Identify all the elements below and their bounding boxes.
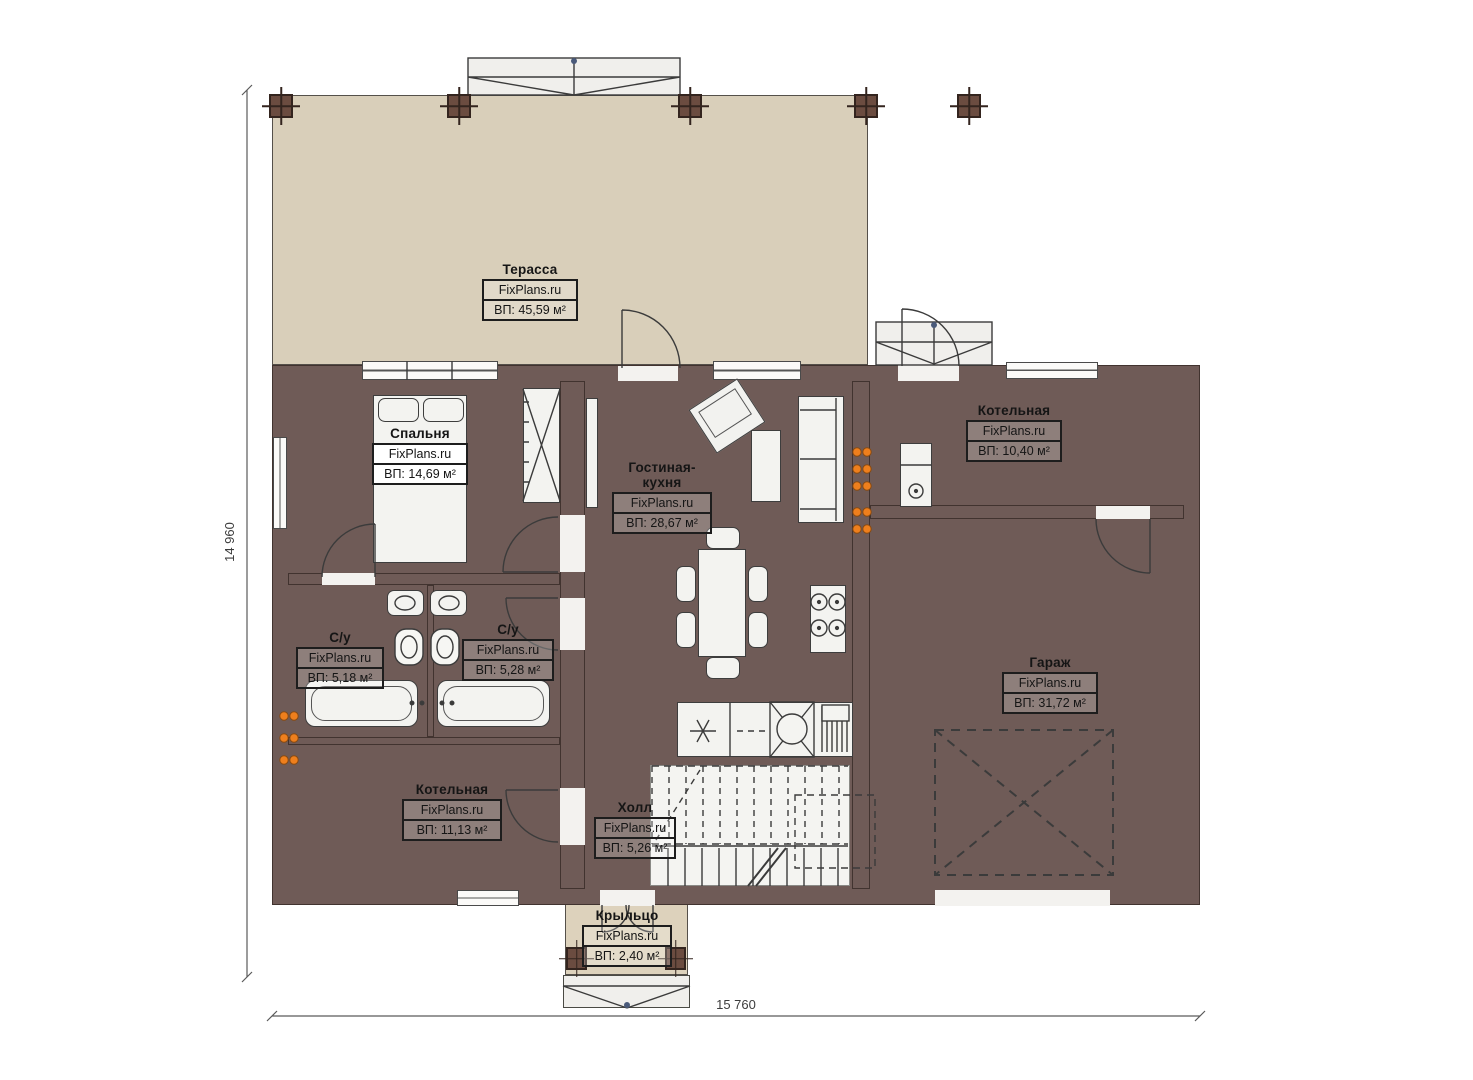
bathtub bbox=[437, 680, 550, 727]
boiler-bottom-door-opening bbox=[560, 788, 585, 845]
room-label-bedroom: Спальня FixPlans.ru ВП: 14,69 м² bbox=[372, 426, 468, 485]
pillow bbox=[378, 398, 419, 422]
brand-watermark: FixPlans.ru bbox=[596, 819, 674, 839]
brand-watermark: FixPlans.ru bbox=[584, 927, 670, 947]
boiler-top-window bbox=[1006, 362, 1098, 379]
room-area: ВП: 31,72 м² bbox=[1004, 694, 1096, 712]
room-name: С/у bbox=[296, 630, 384, 645]
wardrobe bbox=[523, 388, 560, 503]
terrace-post bbox=[269, 94, 293, 118]
room-label-porch: Крыльцо FixPlans.ru ВП: 2,40 м² bbox=[582, 908, 672, 967]
brand-watermark: FixPlans.ru bbox=[968, 422, 1060, 442]
kitchen-counter bbox=[677, 702, 853, 757]
room-label-living: Гостиная-кухня FixPlans.ru ВП: 28,67 м² bbox=[612, 460, 712, 534]
washbasin bbox=[430, 590, 467, 616]
room-label-garage: Гараж FixPlans.ru ВП: 31,72 м² bbox=[1002, 655, 1098, 714]
bath-left-door-opening bbox=[322, 573, 375, 585]
terrace-door-opening bbox=[618, 366, 678, 381]
dimension-width: 15 760 bbox=[676, 997, 796, 1012]
boiler-top-exit-opening bbox=[898, 364, 959, 381]
room-label-bath-right: С/у FixPlans.ru ВП: 5,28 м² bbox=[462, 622, 554, 681]
chair bbox=[676, 612, 696, 648]
room-area: ВП: 5,18 м² bbox=[298, 669, 382, 687]
wall-right-wing bbox=[852, 381, 870, 889]
porch-steps bbox=[563, 975, 690, 1008]
room-area: ВП: 45,59 м² bbox=[484, 301, 576, 319]
brand-watermark: FixPlans.ru bbox=[374, 445, 466, 465]
garage-door-opening-inner bbox=[1096, 506, 1150, 519]
room-label-bath-left: С/у FixPlans.ru ВП: 5,18 м² bbox=[296, 630, 384, 689]
brand-watermark: FixPlans.ru bbox=[298, 649, 382, 669]
room-name: Холл bbox=[594, 800, 676, 815]
pillow bbox=[423, 398, 464, 422]
living-window bbox=[713, 361, 801, 380]
bedroom-door-opening bbox=[560, 515, 585, 572]
room-label-hall: Холл FixPlans.ru ВП: 5,26 м² bbox=[594, 800, 676, 859]
boiler-bottom-window bbox=[457, 890, 519, 906]
canopy-post bbox=[957, 94, 981, 118]
entrance-door-opening bbox=[600, 890, 655, 906]
bath-right-door-opening bbox=[560, 598, 585, 650]
room-name: Спальня bbox=[372, 426, 468, 441]
terrace-entry-steps bbox=[468, 58, 680, 95]
sofa bbox=[798, 396, 844, 523]
floor-plan: Терасса FixPlans.ru ВП: 45,59 м² Спальня… bbox=[0, 0, 1473, 1080]
brand-watermark: FixPlans.ru bbox=[484, 281, 576, 301]
room-name: Крыльцо bbox=[582, 908, 672, 923]
room-area: ВП: 2,40 м² bbox=[584, 947, 670, 965]
chair bbox=[748, 566, 768, 602]
room-area: ВП: 28,67 м² bbox=[614, 514, 710, 532]
terrace-post bbox=[678, 94, 702, 118]
water-heater bbox=[900, 443, 932, 507]
staircase-area bbox=[650, 765, 850, 886]
terrace-post bbox=[854, 94, 878, 118]
dimension-height: 14 960 bbox=[222, 496, 237, 588]
brand-watermark: FixPlans.ru bbox=[1004, 674, 1096, 694]
garage-gate-opening bbox=[935, 890, 1110, 906]
dining-table bbox=[698, 549, 746, 657]
coffee-table bbox=[751, 430, 781, 502]
room-name: Гараж bbox=[1002, 655, 1098, 670]
room-name: Котельная bbox=[966, 403, 1062, 418]
chair bbox=[676, 566, 696, 602]
wall-bath-boiler bbox=[288, 737, 560, 745]
room-label-terrace: Терасса FixPlans.ru ВП: 45,59 м² bbox=[482, 262, 578, 321]
room-label-boiler-top: Котельная FixPlans.ru ВП: 10,40 м² bbox=[966, 403, 1062, 462]
terrace-post bbox=[447, 94, 471, 118]
chair bbox=[748, 612, 768, 648]
brand-watermark: FixPlans.ru bbox=[614, 494, 710, 514]
room-label-boiler-bottom: Котельная FixPlans.ru ВП: 11,13 м² bbox=[402, 782, 502, 841]
boiler-top-steps bbox=[876, 309, 992, 366]
room-area: ВП: 11,13 м² bbox=[404, 821, 500, 839]
chair bbox=[706, 657, 740, 679]
cooktop bbox=[810, 585, 846, 653]
room-area: ВП: 5,28 м² bbox=[464, 661, 552, 679]
room-area: ВП: 14,69 м² bbox=[374, 465, 466, 483]
bedroom-window bbox=[362, 361, 498, 380]
room-name: Терасса bbox=[482, 262, 578, 277]
brand-watermark: FixPlans.ru bbox=[404, 801, 500, 821]
bedroom-side-window bbox=[273, 437, 287, 529]
washbasin bbox=[387, 590, 424, 616]
terrace-floor bbox=[272, 95, 868, 365]
room-name: С/у bbox=[462, 622, 554, 637]
tv-console bbox=[586, 398, 598, 508]
room-name: Гостиная-кухня bbox=[612, 460, 712, 490]
room-area: ВП: 5,26 м² bbox=[596, 839, 674, 857]
brand-watermark: FixPlans.ru bbox=[464, 641, 552, 661]
room-area: ВП: 10,40 м² bbox=[968, 442, 1060, 460]
room-name: Котельная bbox=[402, 782, 502, 797]
